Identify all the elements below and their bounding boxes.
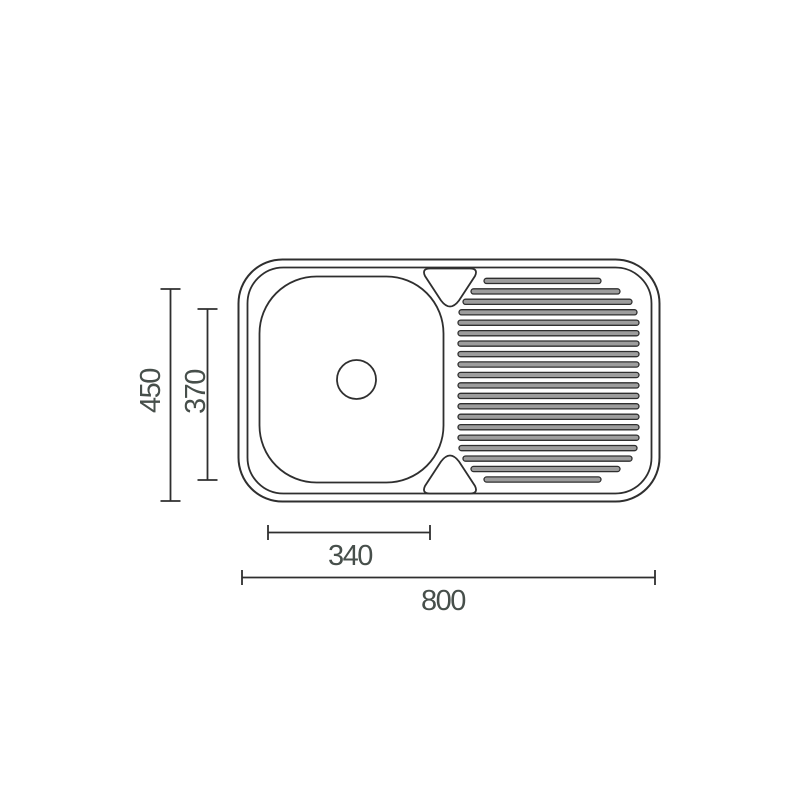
drainer-rib [458,393,639,398]
dim-line-overall-length [242,570,655,585]
drainer-rib [458,341,639,346]
drain-hole [337,360,376,399]
dim-label-bowl-depth: 370 [180,370,212,414]
dim-line-bowl-length [268,525,430,540]
drainer-rib [458,331,639,336]
technical-drawing-canvas: 450 370 340 800 [0,0,800,800]
drainer-rib [459,446,637,451]
drainer-rib [458,320,639,325]
drainer-rib [458,414,639,419]
drainer-rib [458,435,639,440]
sink-plan-view [239,260,660,502]
drainer-rib [463,456,632,461]
drainer-rib [458,404,639,409]
drainer-rib [458,383,639,388]
drainer-rib [458,362,639,367]
sink-diagram: 450 370 340 800 [0,0,800,800]
drainer-rib [471,466,620,471]
drainer-rib [458,372,639,377]
drainer-rib [471,289,620,294]
drainer-rib [458,352,639,357]
dim-label-overall-length: 800 [421,585,465,617]
drainer-rib [463,299,632,304]
dim-label-bowl-length: 340 [328,540,372,572]
drainer-rib [484,477,601,482]
dim-label-overall-depth: 450 [135,369,167,413]
drainer-rib [459,310,637,315]
drainer-rib [458,425,639,430]
drainer-rib [484,278,601,283]
